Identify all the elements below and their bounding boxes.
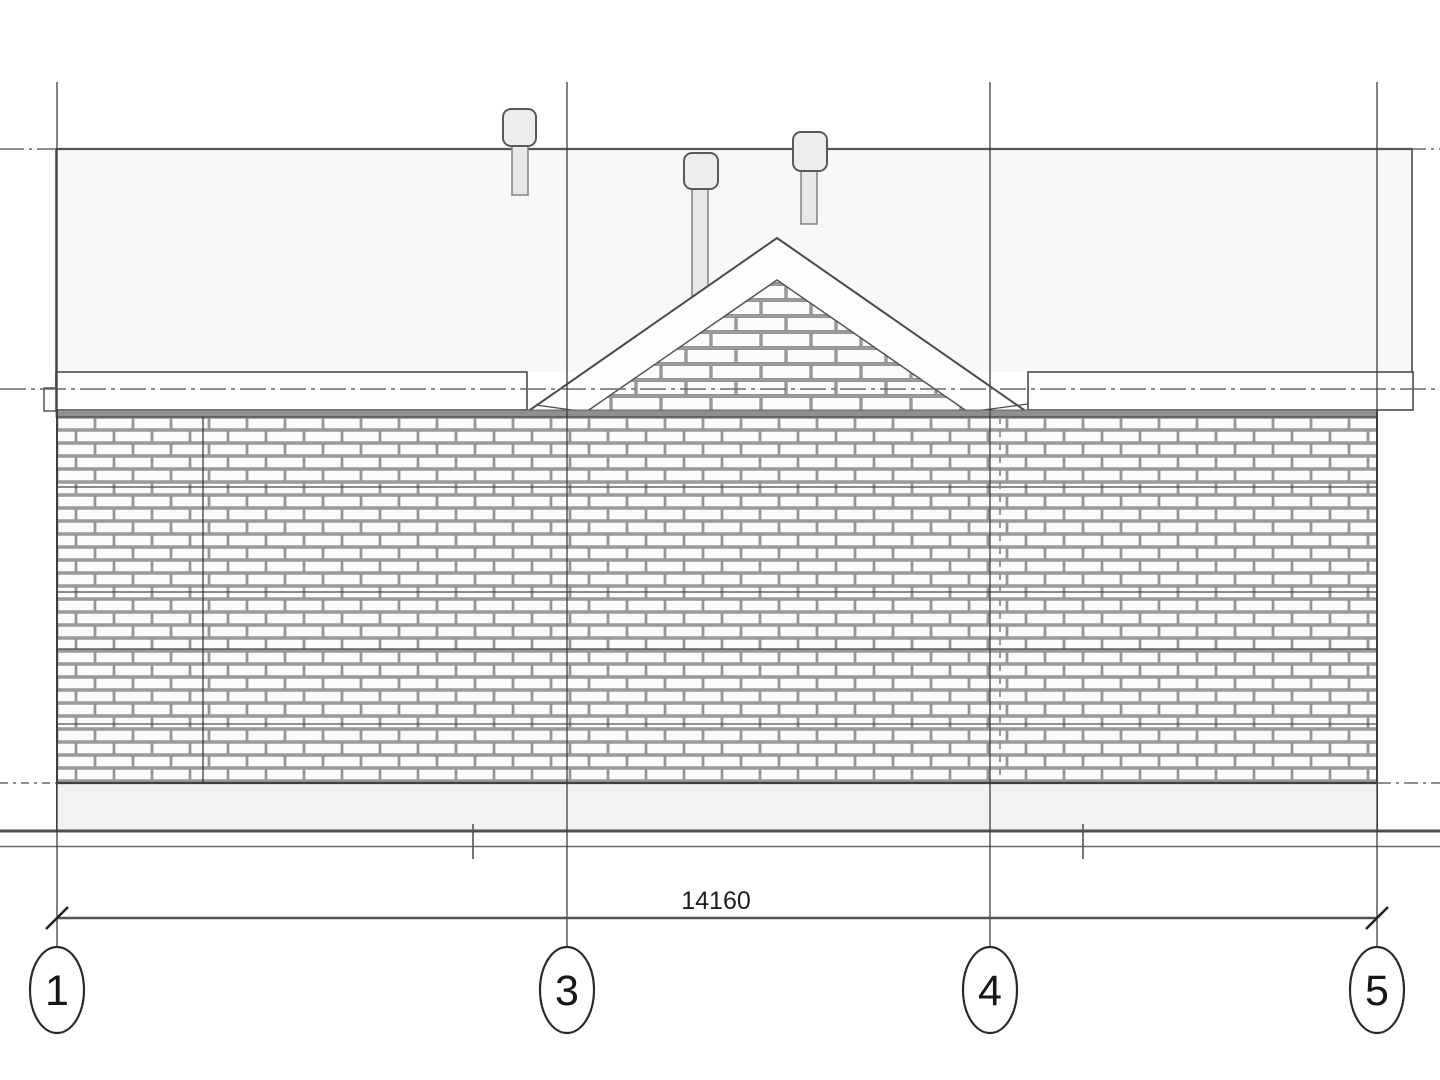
grid-bubble-1: 1 xyxy=(30,947,84,1033)
roof-vent-icon xyxy=(503,109,536,146)
vent-pipe xyxy=(692,186,708,298)
grid-bubble-3: 3 xyxy=(540,947,594,1033)
brick-wall xyxy=(57,410,1377,830)
elevation-drawing-canvas: 14160 1 3 4 5 xyxy=(0,0,1440,1080)
elevation-drawing: 14160 1 3 4 5 xyxy=(0,0,1440,1080)
fascia-band-right xyxy=(1028,372,1413,410)
fascia-band-left xyxy=(56,372,527,410)
grid-bubble-label: 3 xyxy=(555,967,579,1015)
plinth xyxy=(57,783,1377,830)
vent-pipe xyxy=(512,143,528,195)
dimension-value: 14160 xyxy=(681,887,751,915)
grid-bubble-label: 1 xyxy=(45,967,69,1015)
grid-bubble-4: 4 xyxy=(963,947,1017,1033)
plinth-face xyxy=(57,783,1377,830)
fascia-left-end-cap xyxy=(44,388,57,411)
grid-bubble-5: 5 xyxy=(1350,947,1404,1033)
eave-trim-band xyxy=(56,410,1377,417)
roof-vent-icon xyxy=(684,153,718,189)
roof-vent-icon xyxy=(793,132,827,171)
vent-pipe xyxy=(801,168,817,224)
brick-wall-face xyxy=(57,417,1377,783)
grid-bubble-label: 5 xyxy=(1365,967,1389,1015)
grid-bubble-label: 4 xyxy=(978,967,1002,1015)
